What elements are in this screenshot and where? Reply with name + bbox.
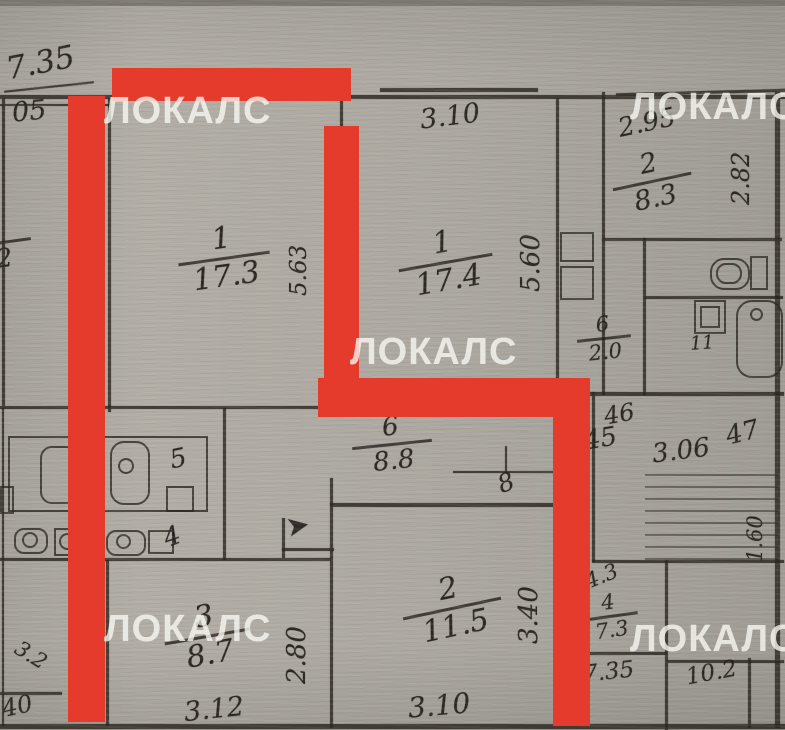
dimension-label-vertical: 3.40 xyxy=(516,586,542,644)
room-area: 2 xyxy=(0,240,35,276)
wall-segment xyxy=(223,408,226,560)
kitchen-box-small xyxy=(0,486,14,514)
dimension-label: 47 xyxy=(723,416,761,449)
room-label: 211.5 xyxy=(396,564,508,651)
room-area: 2.0 xyxy=(577,338,633,367)
watermark: ЛОКАЛС xyxy=(630,88,785,126)
watermark: ЛОКАЛС xyxy=(104,610,271,648)
plan-note-label: 11 xyxy=(689,333,714,354)
red-highlight-bar xyxy=(318,378,590,417)
dimension-label-vertical: 5.63 xyxy=(288,245,311,296)
red-highlight-bar xyxy=(68,96,105,722)
wall-segment xyxy=(643,238,646,395)
wall-segment xyxy=(380,88,538,92)
dimension-label-vertical: 2.80 xyxy=(284,626,310,684)
entrance-arrow-icon: ➤ xyxy=(284,510,312,542)
wall-segment xyxy=(0,558,331,561)
stove-burner xyxy=(118,458,134,474)
wall-segment xyxy=(330,503,558,507)
stove-fixture xyxy=(110,441,150,505)
watermark: ЛОКАЛС xyxy=(104,92,271,130)
bathtub-drain xyxy=(750,308,763,321)
floorplan-scan: 117.3117.428.368.8211.538.762.047.327.35… xyxy=(0,0,785,730)
toilet-tank xyxy=(750,256,768,290)
wall-segment xyxy=(645,296,783,299)
dimension-label: 3.10 xyxy=(407,689,472,722)
stair-tread xyxy=(645,510,778,512)
closet-box xyxy=(560,266,594,300)
wall-segment xyxy=(592,392,595,562)
dimension-label: 3.10 xyxy=(419,99,482,133)
wall-segment xyxy=(556,98,559,395)
watermark: ЛОКАЛС xyxy=(350,333,517,371)
room-label: 28.3 xyxy=(606,142,697,219)
wall-segment xyxy=(556,392,784,396)
dimension-label: 3.12 xyxy=(183,693,246,726)
plan-note-label: 40 xyxy=(0,691,35,721)
wall-segment xyxy=(602,238,782,241)
room-label: 117.3 xyxy=(174,218,275,298)
stair-tread xyxy=(645,486,778,488)
room-label: 117.4 xyxy=(393,220,498,304)
appliance-dial xyxy=(116,534,131,549)
bath-sink-inner xyxy=(700,306,720,328)
dimension-label: 7.35 xyxy=(4,42,78,86)
wall-segment xyxy=(2,408,4,726)
dimension-label: 05 xyxy=(11,96,48,126)
wall-segment xyxy=(282,548,334,551)
stair-tread xyxy=(645,498,778,500)
dimension-label: 3.06 xyxy=(651,435,712,468)
dimension-label-vertical: 2.82 xyxy=(729,152,753,205)
dimension-label: 10.2 xyxy=(684,658,738,690)
appliance-dial xyxy=(22,532,38,548)
room-label: 68.8 xyxy=(349,410,435,478)
wall-segment xyxy=(0,724,785,729)
wall-segment xyxy=(748,658,751,728)
plan-note-label: 3.2 xyxy=(11,638,50,674)
closet-box xyxy=(560,232,594,262)
watermark: ЛОКАЛС xyxy=(630,620,785,658)
room-label: 2 xyxy=(0,222,35,276)
kitchen-box xyxy=(166,486,194,512)
red-highlight-bar xyxy=(553,378,590,726)
wall-segment xyxy=(330,478,333,728)
wall-segment xyxy=(108,98,111,412)
scan-dark-edge xyxy=(0,0,785,6)
dimension-label-vertical: 5.60 xyxy=(518,234,544,292)
room-label: 62.0 xyxy=(575,311,634,366)
dimension-label-vertical: 1.60 xyxy=(745,515,766,562)
wall-segment xyxy=(0,406,344,409)
stair-tread xyxy=(645,474,778,476)
toilet-bowl-inner xyxy=(716,263,742,284)
